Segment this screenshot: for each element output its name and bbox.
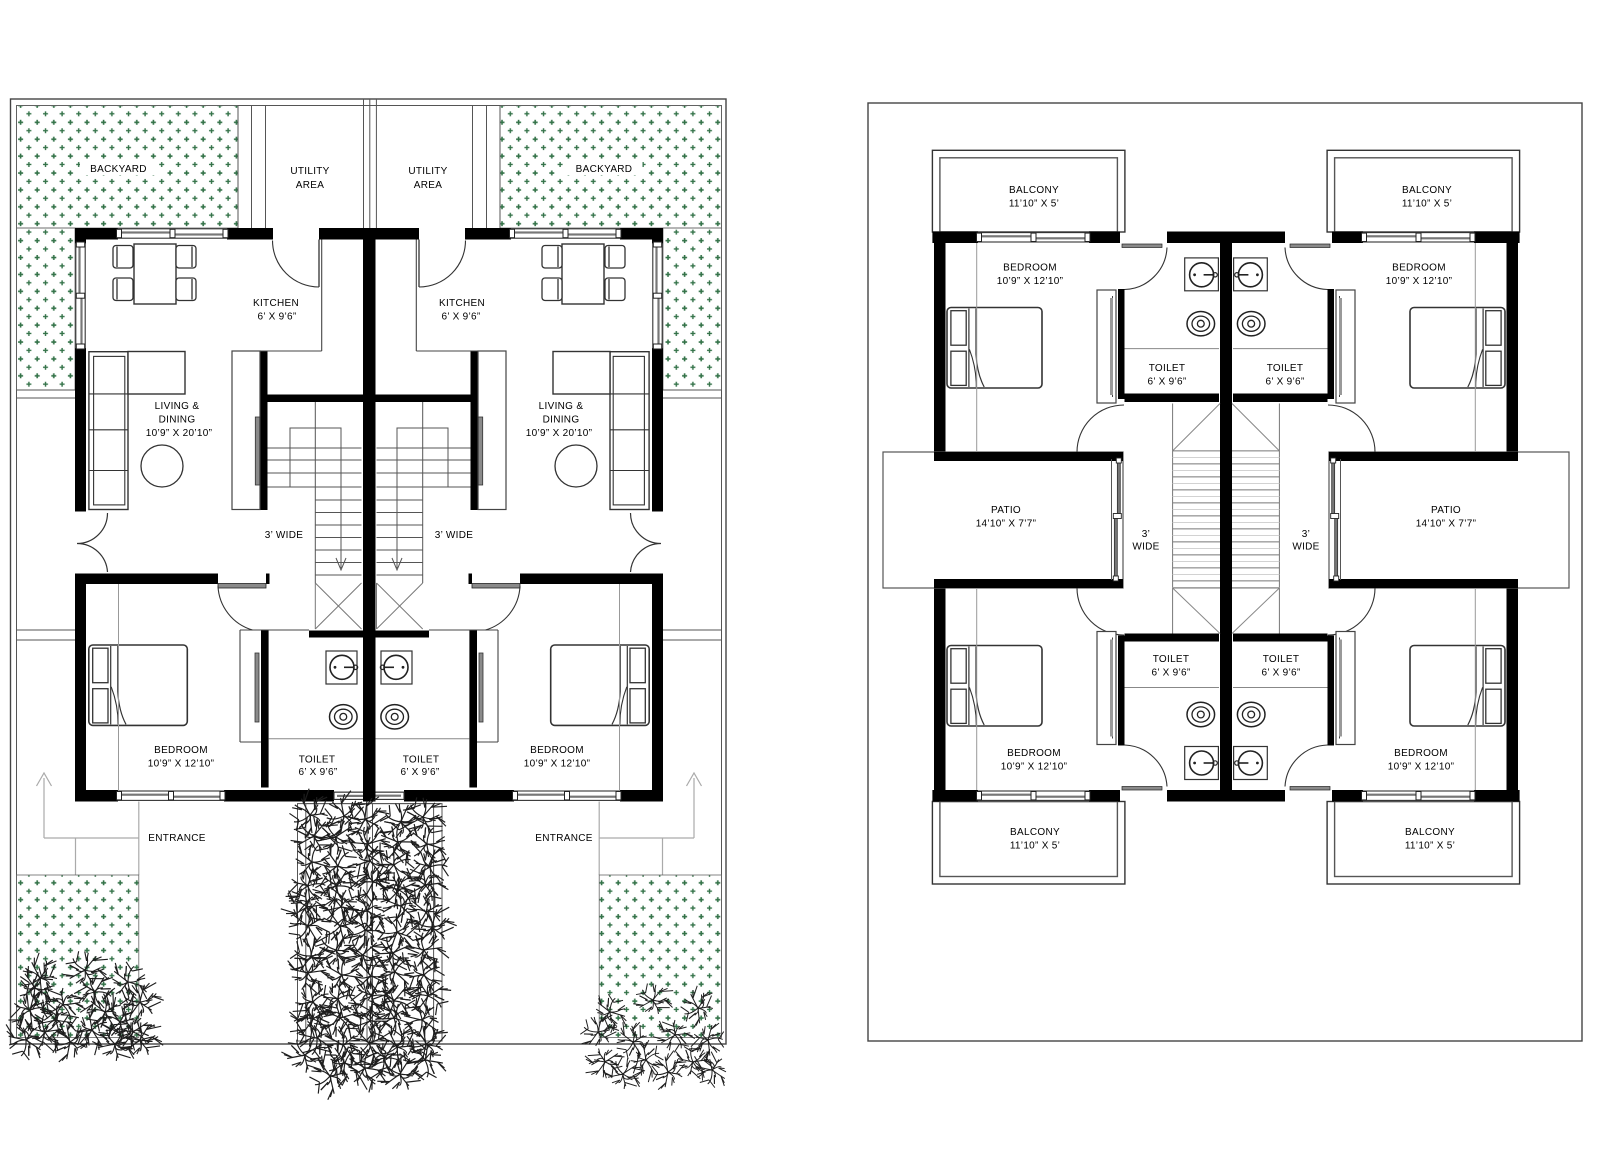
svg-text:6’ X 9’6”: 6’ X 9’6” (257, 312, 296, 323)
svg-text:BACKYARD: BACKYARD (576, 164, 633, 175)
svg-text:6’ X 9’6”: 6’ X 9’6” (298, 767, 337, 778)
svg-text:BALCONY: BALCONY (1405, 827, 1455, 838)
svg-text:BEDROOM: BEDROOM (1003, 263, 1057, 274)
svg-text:PATIO: PATIO (991, 505, 1021, 516)
svg-text:DINING: DINING (543, 415, 580, 426)
svg-text:BACKYARD: BACKYARD (90, 164, 147, 175)
svg-text:WIDE: WIDE (1132, 542, 1159, 553)
svg-text:6’ X 9’6”: 6’ X 9’6” (400, 767, 439, 778)
svg-text:11’10” X 5’: 11’10” X 5’ (1402, 199, 1452, 210)
svg-text:UTILITY: UTILITY (408, 166, 447, 177)
svg-text:14’10” X 7’7”: 14’10” X 7’7” (1416, 519, 1477, 530)
svg-text:BALCONY: BALCONY (1010, 827, 1060, 838)
svg-text:TOILET: TOILET (1153, 654, 1190, 665)
svg-text:BEDROOM: BEDROOM (530, 745, 584, 756)
svg-text:TOILET: TOILET (1149, 363, 1186, 374)
svg-text:LIVING &: LIVING & (155, 401, 200, 412)
svg-text:11’10” X 5’: 11’10” X 5’ (1009, 199, 1059, 210)
svg-text:10’9” X 20’10”: 10’9” X 20’10” (526, 428, 592, 439)
svg-text:11’10” X 5’: 11’10” X 5’ (1010, 841, 1060, 852)
svg-text:TOILET: TOILET (403, 755, 440, 766)
svg-text:BALCONY: BALCONY (1009, 185, 1059, 196)
svg-text:14’10” X 7’7”: 14’10” X 7’7” (976, 519, 1037, 530)
svg-text:3’: 3’ (1302, 529, 1310, 540)
svg-text:WIDE: WIDE (1292, 542, 1319, 553)
svg-text:TOILET: TOILET (1263, 654, 1300, 665)
svg-text:ENTRANCE: ENTRANCE (148, 833, 205, 844)
svg-text:6’ X 9’6”: 6’ X 9’6” (1151, 668, 1190, 679)
svg-text:10’9” X 12’10”: 10’9” X 12’10” (1001, 762, 1067, 773)
svg-text:BEDROOM: BEDROOM (1394, 748, 1448, 759)
svg-text:BEDROOM: BEDROOM (1007, 748, 1061, 759)
svg-text:PATIO: PATIO (1431, 505, 1461, 516)
svg-text:6’ X 9’6”: 6’ X 9’6” (1265, 377, 1304, 388)
svg-text:10’9” X 12’10”: 10’9” X 12’10” (1386, 276, 1452, 287)
svg-text:10’9” X 20’10”: 10’9” X 20’10” (146, 428, 212, 439)
svg-text:6’ X 9’6”: 6’ X 9’6” (1147, 377, 1186, 388)
svg-text:LIVING &: LIVING & (539, 401, 584, 412)
svg-text:UTILITY: UTILITY (290, 166, 329, 177)
svg-text:TOILET: TOILET (1267, 363, 1304, 374)
svg-text:DINING: DINING (159, 415, 196, 426)
svg-text:ENTRANCE: ENTRANCE (535, 833, 592, 844)
svg-text:BALCONY: BALCONY (1402, 185, 1452, 196)
svg-text:KITCHEN: KITCHEN (253, 298, 299, 309)
svg-text:3’: 3’ (1142, 529, 1150, 540)
svg-text:TOILET: TOILET (299, 755, 336, 766)
svg-text:AREA: AREA (414, 180, 442, 191)
svg-text:11’10” X 5’: 11’10” X 5’ (1405, 841, 1455, 852)
svg-text:3’ WIDE: 3’ WIDE (435, 530, 473, 541)
svg-text:BEDROOM: BEDROOM (1392, 263, 1446, 274)
svg-text:10’9” X 12’10”: 10’9” X 12’10” (148, 759, 214, 770)
svg-text:BEDROOM: BEDROOM (154, 745, 208, 756)
svg-text:10’9” X 12’10”: 10’9” X 12’10” (1388, 762, 1454, 773)
svg-text:10’9” X 12’10”: 10’9” X 12’10” (524, 759, 590, 770)
svg-text:6’ X 9’6”: 6’ X 9’6” (1261, 668, 1300, 679)
svg-text:6’ X 9’6”: 6’ X 9’6” (441, 312, 480, 323)
svg-text:3’ WIDE: 3’ WIDE (265, 530, 303, 541)
svg-text:10’9” X 12’10”: 10’9” X 12’10” (997, 276, 1063, 287)
svg-text:KITCHEN: KITCHEN (439, 298, 485, 309)
svg-text:AREA: AREA (296, 180, 324, 191)
